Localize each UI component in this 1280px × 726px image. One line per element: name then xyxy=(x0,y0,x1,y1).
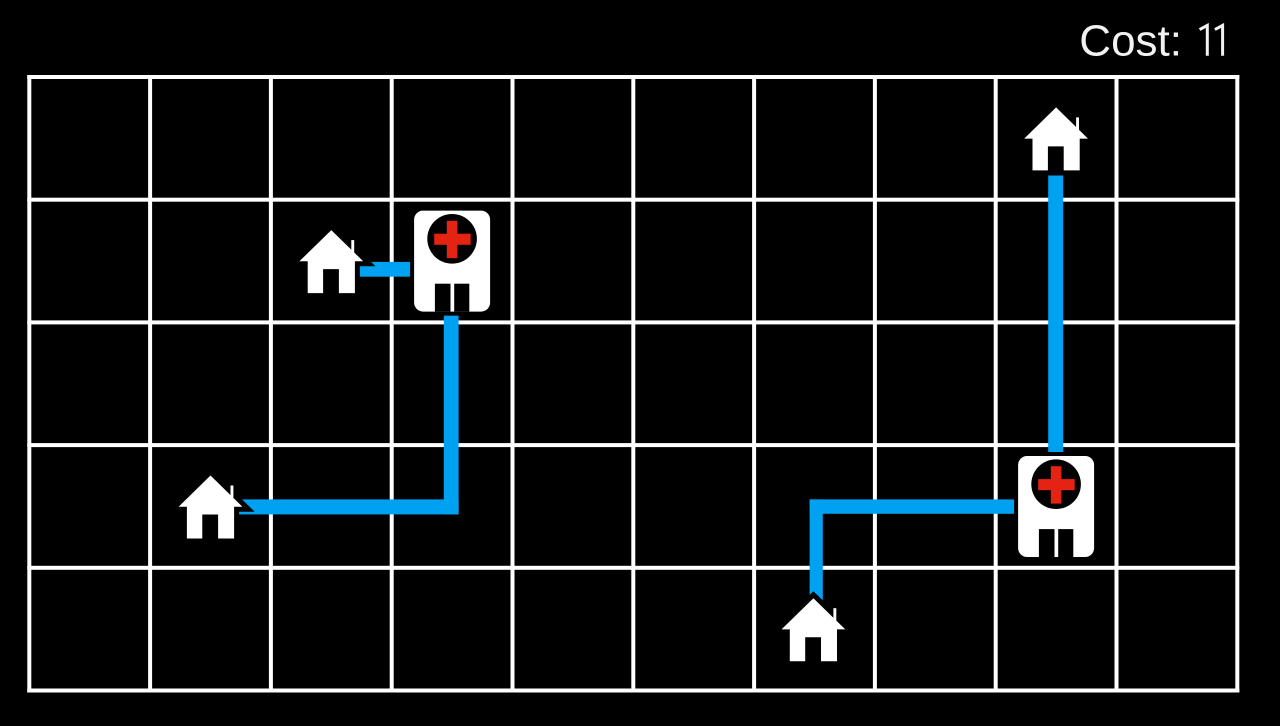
svg-text:Cost:: Cost: xyxy=(1079,16,1182,65)
